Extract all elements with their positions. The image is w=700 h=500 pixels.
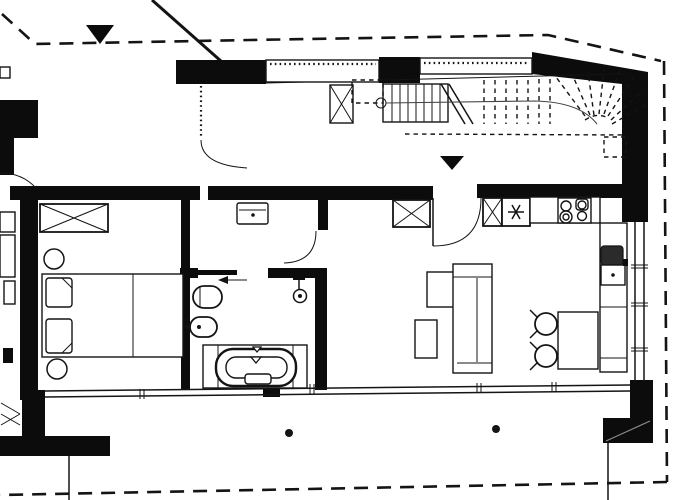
coffee-table bbox=[415, 320, 437, 358]
fridge-freezer bbox=[502, 198, 530, 226]
bathtub bbox=[203, 345, 307, 388]
section-marker-triangle-icon bbox=[86, 25, 114, 44]
bedroom-left-door-arc bbox=[1, 173, 36, 188]
right-window-band bbox=[631, 222, 648, 382]
entry-door bbox=[433, 198, 481, 246]
column-dot-2 bbox=[492, 425, 500, 433]
hall-washbasin bbox=[237, 203, 268, 224]
living-room bbox=[415, 264, 598, 373]
dining-set bbox=[530, 310, 598, 370]
floorplan-drawing bbox=[0, 0, 700, 500]
bottom-window-band bbox=[45, 382, 630, 399]
entry-wardrobe-x bbox=[393, 200, 430, 227]
hall-door bbox=[201, 86, 247, 168]
roof-edge-line bbox=[152, 0, 222, 62]
stair-duct-x-box bbox=[330, 85, 353, 123]
kitchen-counter-right bbox=[600, 223, 627, 372]
bedroom bbox=[40, 204, 183, 379]
round-stool-bottom bbox=[47, 359, 67, 379]
round-stool-top bbox=[44, 249, 64, 269]
vestibule-door-arc bbox=[284, 231, 316, 263]
top-window-band-1 bbox=[266, 60, 379, 82]
sliding-door-arrow-icon bbox=[218, 276, 247, 284]
walls bbox=[0, 52, 653, 456]
dining-chair-2 bbox=[530, 342, 557, 370]
dining-chair-1 bbox=[530, 310, 557, 338]
staircase bbox=[330, 70, 647, 157]
right-window-mullion-ticks bbox=[631, 265, 648, 351]
cooktop-4-burners bbox=[558, 198, 591, 223]
vent-chevron-icon bbox=[1, 403, 20, 425]
dining-table bbox=[558, 312, 598, 369]
shower-head-icon bbox=[293, 272, 307, 303]
column-dot-1 bbox=[285, 429, 293, 437]
entry-marker-triangle-icon bbox=[440, 156, 464, 170]
kitchen bbox=[483, 197, 628, 372]
bedroom-wardrobe-x bbox=[40, 204, 108, 232]
bathroom-sliding-door bbox=[191, 270, 247, 284]
kitchen-tall-cabinet-x bbox=[483, 198, 502, 226]
terrace-columns bbox=[285, 425, 500, 437]
floorplan-canvas bbox=[0, 0, 700, 500]
toilet bbox=[193, 286, 222, 308]
bathroom bbox=[184, 272, 307, 388]
top-window-band-2 bbox=[420, 58, 532, 74]
double-bed bbox=[42, 274, 183, 357]
